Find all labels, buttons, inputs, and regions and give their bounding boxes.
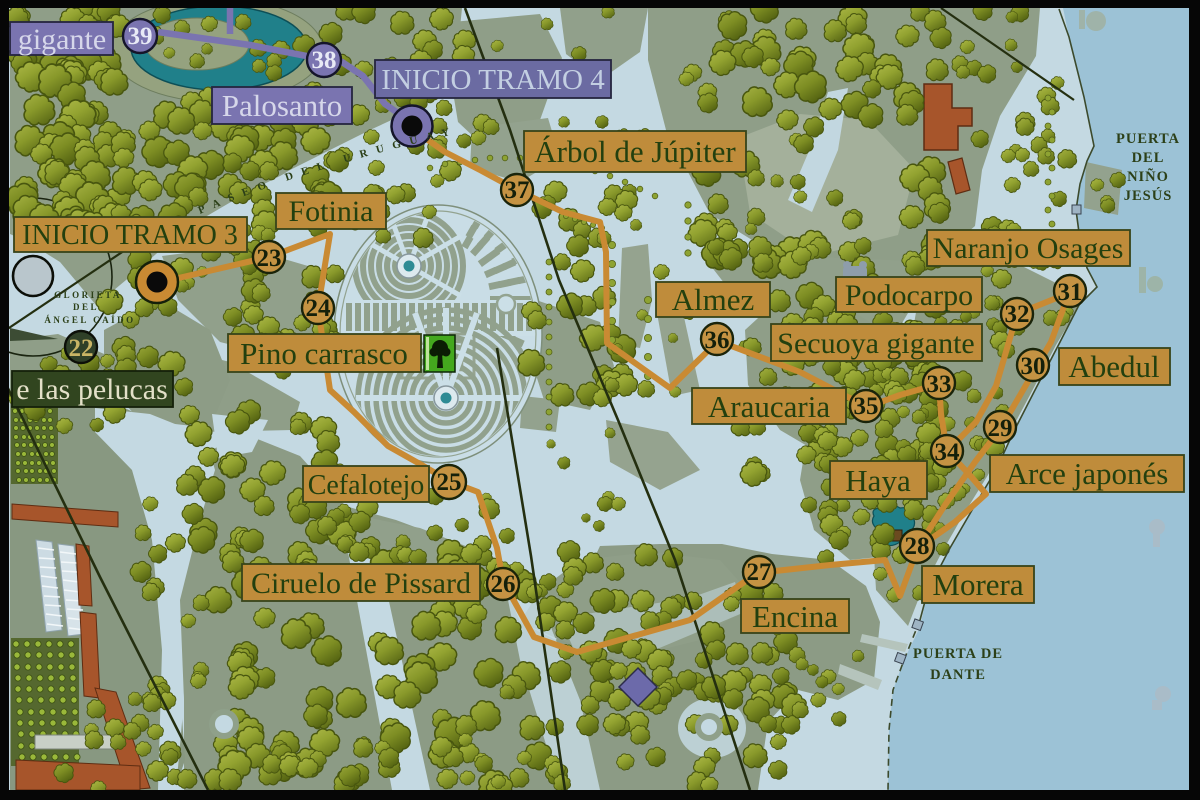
svg-text:36: 36 <box>705 327 730 354</box>
svg-text:PUERTA DE: PUERTA DE <box>913 646 1003 662</box>
svg-text:gigante: gigante <box>18 23 106 56</box>
svg-text:Abedul: Abedul <box>1068 349 1159 384</box>
svg-text:Secuoya gigante: Secuoya gigante <box>777 327 974 360</box>
svg-text:Morera: Morera <box>932 567 1023 602</box>
svg-text:INICIO TRAMO 3: INICIO TRAMO 3 <box>22 220 238 251</box>
svg-text:39: 39 <box>128 23 153 50</box>
svg-text:24: 24 <box>306 295 332 322</box>
svg-text:DANTE: DANTE <box>930 667 986 683</box>
svg-text:23: 23 <box>257 245 282 272</box>
svg-text:e las pelucas: e las pelucas <box>16 373 168 406</box>
svg-text:Podocarpo: Podocarpo <box>845 279 973 312</box>
svg-text:Haya: Haya <box>845 463 911 498</box>
svg-text:Naranjo Osages: Naranjo Osages <box>933 232 1124 265</box>
svg-text:Encina: Encina <box>752 599 838 634</box>
svg-text:INICIO TRAMO 4: INICIO TRAMO 4 <box>381 64 605 96</box>
svg-text:GLORIETA: GLORIETA <box>54 290 122 300</box>
svg-text:33: 33 <box>927 371 952 398</box>
svg-text:25: 25 <box>437 469 462 496</box>
svg-text:PUERTA: PUERTA <box>1116 131 1180 147</box>
svg-text:Palosanto: Palosanto <box>222 88 343 123</box>
svg-text:22: 22 <box>69 335 94 362</box>
svg-text:DEL: DEL <box>1132 150 1165 166</box>
svg-text:Araucaria: Araucaria <box>708 389 830 424</box>
svg-text:DEL: DEL <box>73 302 99 312</box>
svg-text:Arce japonés: Arce japonés <box>1006 456 1169 491</box>
svg-text:JESÚS: JESÚS <box>1124 187 1173 204</box>
svg-text:ÁNGEL CAÍDO: ÁNGEL CAÍDO <box>44 315 135 325</box>
svg-text:29: 29 <box>988 415 1013 442</box>
svg-text:Almez: Almez <box>672 282 755 317</box>
svg-text:35: 35 <box>854 393 879 420</box>
svg-text:Pino carrasco: Pino carrasco <box>240 336 408 371</box>
svg-text:Ciruelo de Pissard: Ciruelo de Pissard <box>251 567 471 600</box>
svg-text:28: 28 <box>905 533 930 560</box>
svg-text:Cefalotejo: Cefalotejo <box>308 470 425 501</box>
svg-text:26: 26 <box>491 571 516 598</box>
svg-text:27: 27 <box>747 559 772 586</box>
svg-text:34: 34 <box>935 439 961 466</box>
svg-text:30: 30 <box>1021 353 1046 380</box>
svg-text:31: 31 <box>1058 279 1083 306</box>
svg-text:38: 38 <box>312 47 337 74</box>
svg-text:Árbol de Júpiter: Árbol de Júpiter <box>534 134 736 169</box>
svg-text:Fotinia: Fotinia <box>288 195 373 228</box>
svg-text:NIÑO: NIÑO <box>1127 167 1169 185</box>
svg-text:37: 37 <box>505 177 530 204</box>
svg-text:32: 32 <box>1005 301 1030 328</box>
